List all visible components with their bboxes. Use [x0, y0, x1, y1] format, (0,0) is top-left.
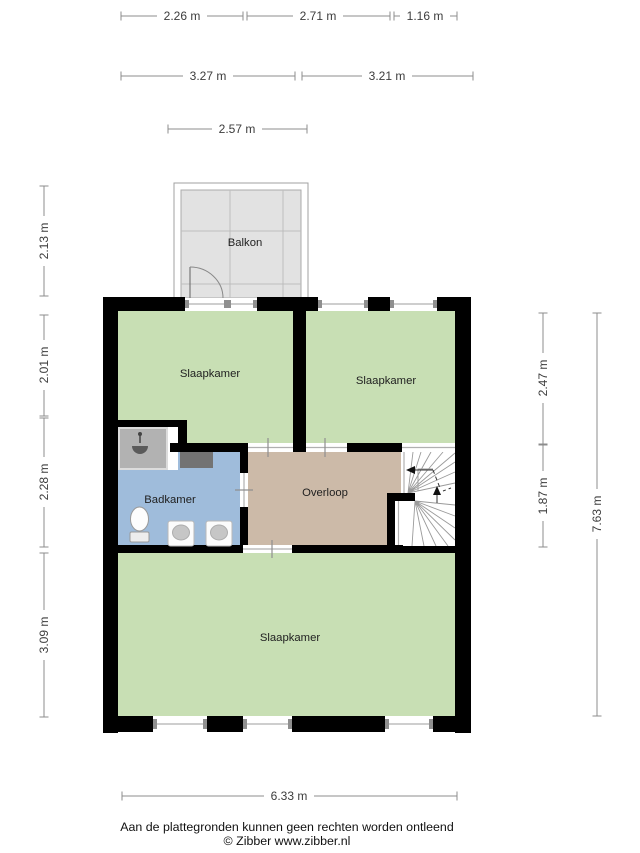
outer-wall-bottom-2	[207, 716, 243, 732]
wall-stair-stub	[387, 493, 415, 501]
sink-icon-2	[206, 521, 232, 546]
window-bottom-2	[243, 716, 292, 732]
wall-between-top-bedrooms	[293, 310, 306, 452]
dimension-label: 2.13 m	[37, 223, 51, 260]
window-bottom-3	[385, 716, 433, 732]
dimension-label: 2.71 m	[300, 9, 337, 23]
dimension-label: 3.21 m	[369, 69, 406, 83]
floorplan-drawing: Balkon Slaapkamer Slaapkamer Badkamer Ov…	[0, 0, 640, 853]
window-top-2	[390, 298, 437, 310]
outer-wall-bottom-4	[433, 716, 471, 732]
wall-badkamer-right-upper	[240, 443, 248, 473]
footer-disclaimer: Aan de plattegronden kunnen geen rechten…	[120, 820, 454, 834]
outer-wall-top-2	[257, 297, 318, 311]
outer-wall-left	[103, 297, 118, 733]
slaapkamer-top-left-label: Slaapkamer	[180, 368, 241, 380]
wall-under-stairs	[403, 546, 455, 553]
slaapkamer-top-right-label: Slaapkamer	[356, 375, 417, 387]
dimension-label: 3.09 m	[37, 617, 51, 654]
wall-badkamer-right-lower	[240, 507, 248, 545]
wall-overloop-top-right	[347, 443, 402, 452]
wall-shower-top	[118, 420, 187, 427]
balkon-label: Balkon	[228, 237, 263, 249]
dimension-label: 3.27 m	[190, 69, 227, 83]
footer-credit: © Zibber www.zibber.nl	[224, 834, 351, 848]
wall-middle-bottom-right	[292, 545, 403, 553]
wall-shower-side	[178, 420, 187, 452]
dimension-label: 7.63 m	[590, 496, 604, 533]
window-top-1	[318, 298, 368, 310]
dimension-label: 2.28 m	[37, 464, 51, 501]
dimension-label: 2.01 m	[37, 347, 51, 384]
sink-icon-1	[168, 521, 194, 546]
outer-wall-bottom-1	[103, 716, 153, 732]
dimension-label: 2.26 m	[164, 9, 201, 23]
window-bottom-1	[153, 716, 207, 732]
outer-wall-top-1	[103, 297, 185, 311]
toilet-icon	[130, 507, 149, 542]
outer-wall-top-4	[437, 297, 471, 311]
badkamer-label: Badkamer	[144, 494, 196, 506]
dimension-label: 2.57 m	[219, 122, 256, 136]
outer-wall-bottom-3	[292, 716, 385, 732]
dimension-label: 1.16 m	[407, 9, 444, 23]
cabinet	[180, 452, 213, 468]
wall-stair-left	[387, 501, 395, 546]
overloop-label: Overloop	[302, 487, 348, 499]
dimension-label: 6.33 m	[271, 789, 308, 803]
balcony-door-opening	[185, 298, 257, 310]
floorplan-page: Balkon Slaapkamer Slaapkamer Badkamer Ov…	[0, 0, 640, 853]
footer: Aan de plattegronden kunnen geen rechten…	[120, 820, 454, 848]
dimension-label: 1.87 m	[536, 478, 550, 515]
outer-wall-right	[455, 297, 471, 733]
outer-wall-top-3	[368, 297, 390, 311]
slaapkamer-bottom-label: Slaapkamer	[260, 632, 321, 644]
stairwell-top-opening	[402, 443, 455, 452]
dimension-label: 2.47 m	[536, 360, 550, 397]
